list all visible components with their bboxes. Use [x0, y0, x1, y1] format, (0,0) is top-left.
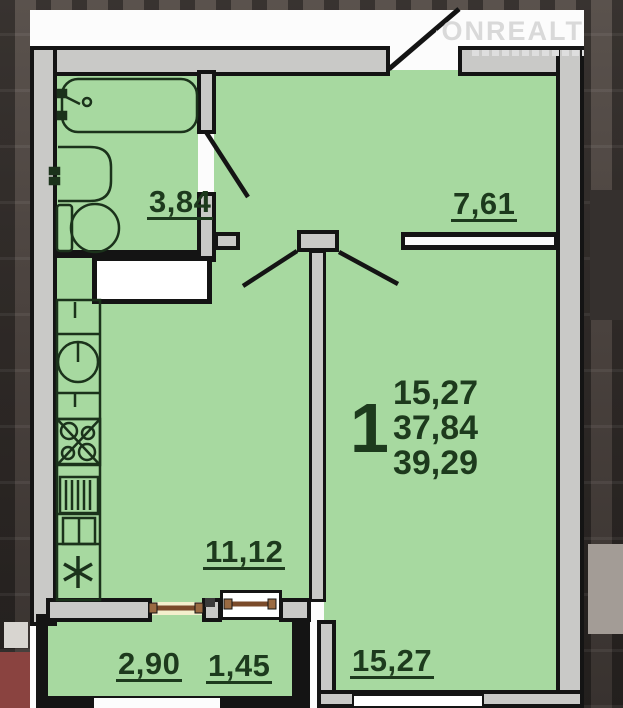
balcony-area-reduced-label: 1,45 — [206, 650, 272, 684]
logo-tagline-bar — [472, 50, 584, 56]
photo-detail-light — [4, 622, 28, 648]
living-window-opening — [352, 694, 484, 708]
photo-detail-wall — [588, 544, 623, 634]
balcony-area-full-label: 2,90 — [116, 648, 182, 682]
watermark-logo: ONREALT — [436, 16, 584, 62]
balcony-door-panel — [220, 590, 282, 620]
wall-kitchen-window-left — [46, 598, 152, 622]
duct-shaft — [92, 256, 212, 304]
wall-hall-segment-left — [214, 232, 240, 250]
kitchen-area-label: 11,12 — [203, 536, 285, 570]
balcony-glazing-opening — [94, 698, 220, 708]
apartment-summary: 1 15,27 37,84 39,29 — [350, 376, 478, 481]
photo-detail-red — [0, 652, 30, 708]
wall-hall-stub — [297, 230, 339, 252]
hallway-area-label: 7,61 — [451, 188, 517, 222]
bathroom-area-label: 3,84 — [147, 186, 213, 220]
summary-total-area: 39,29 — [393, 446, 478, 481]
bathroom-floor — [55, 70, 198, 258]
house-icon — [436, 16, 438, 46]
room-count: 1 — [350, 397, 389, 460]
wall-kitchen-living-divider — [309, 250, 326, 602]
summary-area-without-balcony: 37,84 — [393, 411, 478, 446]
wall-living-left-lower — [317, 620, 336, 698]
summary-living-area: 15,27 — [393, 376, 478, 411]
wall-right — [556, 46, 584, 708]
wall-balcony-left — [36, 614, 48, 708]
wall-kitchen-window-right — [279, 598, 311, 622]
living-room-area-label: 15,27 — [350, 645, 434, 679]
brand-name: ONREALT — [442, 18, 585, 45]
photo-detail-window — [590, 190, 623, 320]
wall-left — [30, 46, 57, 626]
floorplan-screenshot: 3,84 7,61 11,12 15,27 2,90 1,45 1 15,27 … — [0, 0, 623, 708]
wall-hall-right — [401, 232, 558, 250]
wall-balcony-right — [292, 620, 310, 708]
wall-bathroom-right-upper — [197, 70, 216, 134]
wall-kitchen-window-jamb — [202, 598, 222, 622]
